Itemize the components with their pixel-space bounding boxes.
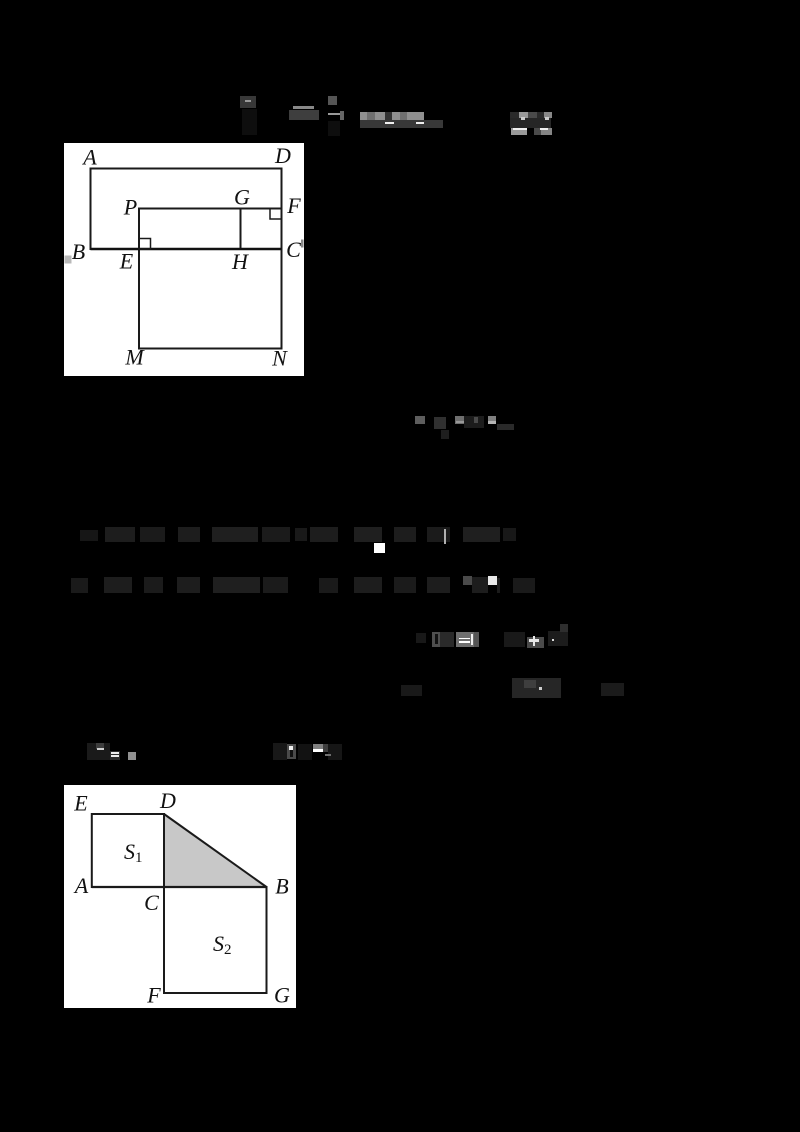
svg-text:A: A: [73, 873, 89, 898]
svg-text:B: B: [72, 239, 85, 264]
svg-text:N: N: [271, 346, 288, 371]
svg-text:D: D: [274, 143, 291, 168]
svg-text:B: B: [275, 874, 288, 899]
svg-text:G: G: [234, 185, 250, 210]
svg-text:A: A: [81, 145, 97, 170]
svg-text:F: F: [146, 983, 161, 1008]
svg-text:P: P: [123, 195, 137, 220]
svg-text:G: G: [274, 983, 290, 1008]
svg-text:H: H: [231, 249, 249, 274]
svg-text:D: D: [159, 788, 176, 813]
svg-text:C: C: [286, 237, 301, 262]
svg-text:F: F: [286, 193, 301, 218]
svg-text:M: M: [124, 345, 145, 370]
svg-text:E: E: [73, 791, 88, 816]
svg-text:C: C: [144, 890, 159, 915]
svg-text:E: E: [119, 249, 134, 274]
